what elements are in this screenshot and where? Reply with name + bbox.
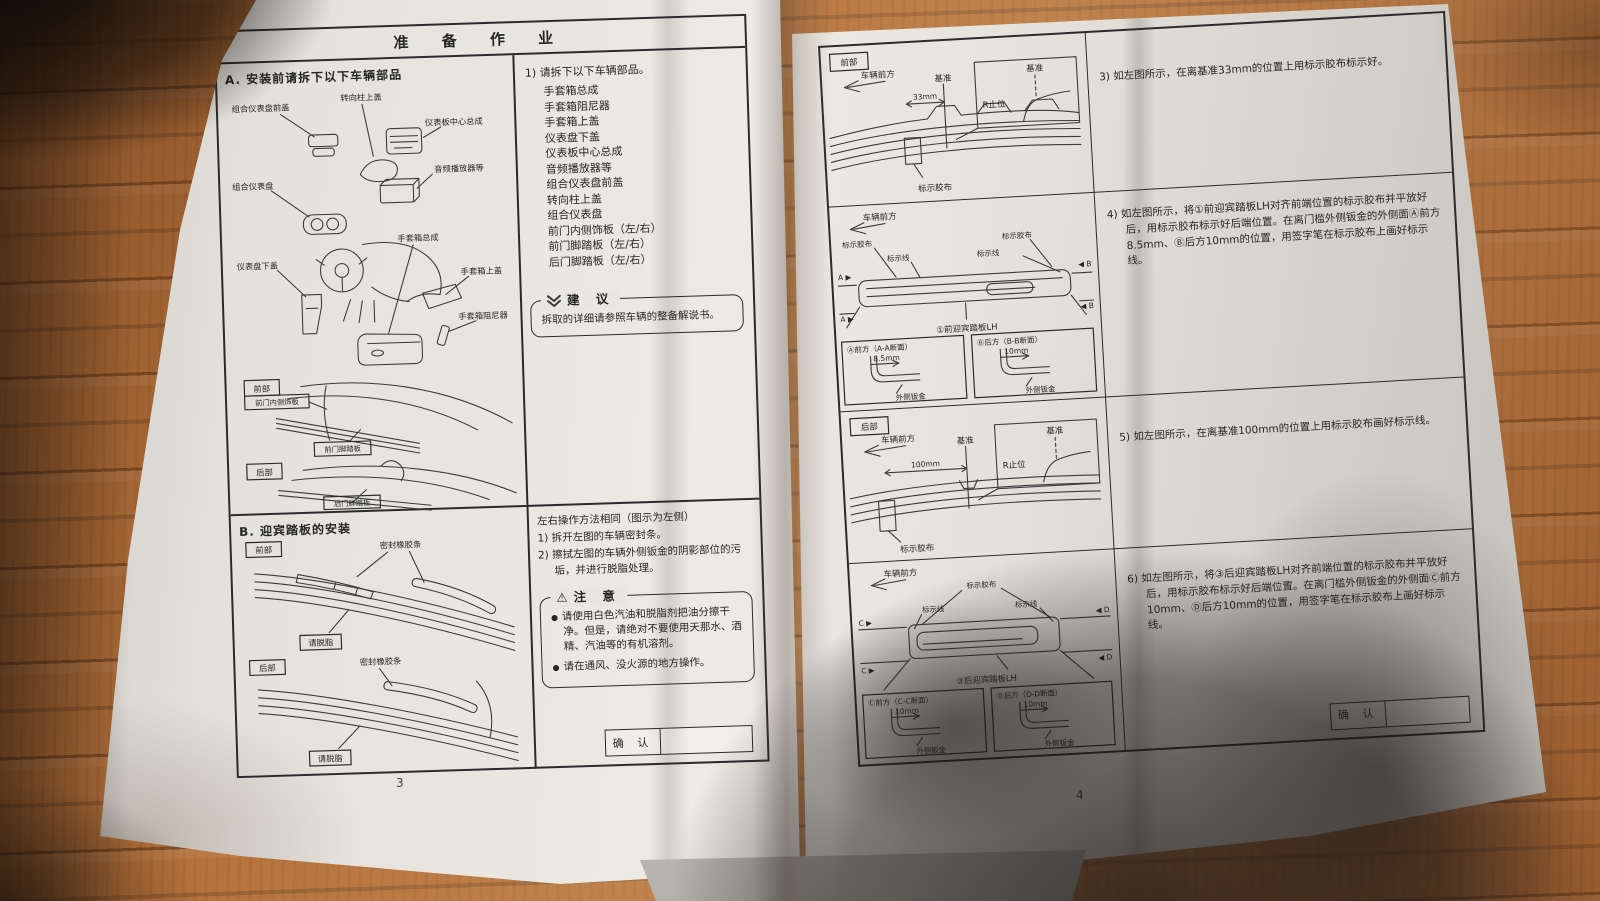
front-datum-label: 基准	[934, 73, 952, 85]
procedure-step-2: 2) 擦拭左图的车辆外侧钣金的阴影部位的污垢，并进行脱脂处理。	[538, 542, 756, 579]
exploded-parts-lines	[269, 101, 478, 368]
right-page-content-box: 前部 车辆前方 基准	[818, 11, 1485, 767]
label-front-door-scuff: 前门脚踏板	[324, 444, 361, 454]
confirm-box-left: 确 认	[605, 725, 754, 757]
confirm-value-cell	[1385, 697, 1469, 727]
step-5: 5) 如左图所示，在离基准100mm的位置上用标示胶布画好标示线。	[1119, 412, 1452, 446]
rear-line-right: 标示线	[1015, 598, 1038, 609]
label-seal-strip-rear: 密封橡胶条	[360, 656, 403, 667]
front-scuff-diagram: 车辆前方 标示胶布 标示线 标示胶布 标示线 A ▶	[829, 193, 1105, 411]
section-a-row: A. 安装前请拆下以下车辆部品	[216, 48, 759, 516]
section-b-text-cell: 左右操作方法相同（图示为左侧） 1) 拆开左图的车辆密封条。 2) 擦拭左图的车…	[529, 500, 768, 769]
confirm-value-cell	[661, 726, 753, 754]
step-5-cell: 5) 如左图所示，在离基准100mm的位置上用标示胶布画好标示线。	[1105, 377, 1472, 548]
section-dd-box: Ⓓ后方（D-D断面） 10mm 外侧钣金	[991, 681, 1115, 751]
section-bb-title: Ⓑ后方（B-B断面）	[977, 334, 1043, 348]
front-datum-direction: 车辆前方	[860, 69, 895, 82]
rear-datum-svg: 后部 车辆前方 基准 100mm	[844, 401, 1110, 559]
section-dd-title: Ⓓ后方（D-D断面）	[996, 687, 1062, 701]
rear-sill-lines	[258, 664, 519, 768]
warning-icon: ⚠	[556, 589, 568, 607]
section-cc-title: Ⓒ前方（C-C断面）	[868, 694, 933, 708]
section-bb-box: Ⓑ后方（B-B断面） 10mm 外侧钣金	[971, 328, 1096, 398]
section-aa-metal: 外侧钣金	[895, 391, 926, 403]
step-3-cell: 3) 如左图所示，在离基准33mm的位置上用标示胶布标示好。	[1085, 13, 1452, 192]
b-bottom-marker: ◀ B	[1080, 301, 1094, 311]
confirm-label: 确 认	[1331, 701, 1387, 729]
rear-scuff-svg: 车辆前方 标示胶布 标示线 标示线 C ▶ C ▶ ◀	[852, 553, 1120, 762]
rear-door-sketch: 后部 后门脚踏板	[247, 456, 517, 516]
label-panel-lower: 仪表盘下盖	[236, 261, 278, 272]
row-rear-scuff: 车辆前方 标示胶布 标示线 标示线 C ▶ C ▶ ◀	[849, 529, 1483, 765]
front-datum-tag: 前部	[840, 57, 858, 69]
front-tag: 前部	[253, 383, 270, 394]
section-dd-metal: 外侧钣金	[1044, 737, 1075, 749]
exploded-parts-diagram: 组合仪表盘前盖 转向柱上盖 仪表板中心总成 音频播放器等 组合仪表盘 仪表盘下盖…	[223, 80, 528, 517]
step-3: 3) 如左图所示，在离基准33mm的位置上用标示胶布标示好。	[1099, 52, 1432, 86]
section-aa-box: Ⓐ前方（A-A断面） 8.5mm 外侧钣金	[842, 335, 967, 405]
c-bottom-marker: C ▶	[861, 666, 875, 676]
rear-scuff-caption: ③后迎宾踏板LH	[956, 673, 1017, 686]
suggestion-text: 拆取的详细请参照车辆的整备解说书。	[541, 307, 734, 328]
front-datum-svg: 前部 车辆前方 基准	[823, 36, 1089, 202]
section-aa-dim: 8.5mm	[873, 353, 900, 363]
label-rear-door-scuff: 后门脚踏板	[334, 498, 371, 508]
suggestion-box: 建 议 拆取的详细请参照车辆的整备解说书。	[530, 294, 744, 338]
rear-tag: 后部	[256, 467, 273, 478]
front-inset-datum: 基准	[1026, 62, 1044, 74]
suggestion-icon	[547, 294, 561, 307]
section-cc-box: Ⓒ前方（C-C断面） 10mm 外侧钣金	[863, 688, 987, 758]
section-bb-metal: 外侧钣金	[1025, 383, 1056, 395]
rear-line-left: 标示线	[922, 603, 945, 614]
confirm-box-right: 确 认	[1329, 696, 1470, 731]
page-number-3: 3	[396, 776, 404, 790]
label-cluster: 组合仪表盘	[232, 181, 274, 192]
section-b-row: B. 迎宾踏板的安装 前部 密封橡胶条 请脱脂	[231, 500, 768, 778]
front-sill-lines	[254, 548, 515, 658]
scuff-install-diagram: 前部 密封橡胶条 请脱脂 后部 密封橡胶条	[237, 532, 532, 777]
d-top-marker: ◀ D	[1096, 605, 1111, 615]
suggestion-box-title: 建 议	[541, 290, 621, 311]
label-degrease-front: 请脱脂	[308, 637, 333, 648]
rear-tape-top: 标示胶布	[966, 579, 996, 591]
confirm-label: 确 认	[606, 729, 662, 756]
front-tape-right: 标示胶布	[1002, 229, 1033, 241]
label-glovebox-cover: 手套箱上盖	[461, 265, 503, 276]
label-glovebox-damper: 手套箱阻尼器	[458, 310, 509, 322]
step-4-cell: 4) 如左图所示，将①前迎宾踏板LH对齐前端位置的标示胶布并平放好后，用标示胶布…	[1094, 173, 1464, 397]
removal-list-intro: 1) 请拆下以下车辆部品。	[525, 58, 746, 81]
label-front-door-trim: 前门内侧饰板	[255, 397, 300, 407]
left-page-content-box: 准 备 作 业 A. 安装前请拆下以下车辆部品	[213, 14, 769, 778]
a-top-marker: A ▶	[838, 272, 852, 282]
front-scuff-direction: 车辆前方	[862, 211, 897, 224]
caution-bullet-2: 请在通风、没火源的地方操作。	[552, 654, 745, 675]
removal-list: 手套箱总成 手套箱阻尼器 手套箱上盖 仪表盘下盖 仪表板中心总成 音频播放器等 …	[543, 78, 752, 270]
rear-datum-label: 基准	[956, 435, 974, 447]
label-seal-strip-front: 密封橡胶条	[380, 539, 423, 550]
rear-scuff-direction: 车辆前方	[883, 567, 917, 579]
front-scuff-svg: 车辆前方 标示胶布 标示线 标示胶布 标示线 A ▶	[832, 196, 1101, 407]
label-steering-column-cover: 转向柱上盖	[340, 92, 382, 103]
front-line-left: 标示线	[887, 252, 911, 263]
front-datum-dim: 33mm	[913, 91, 938, 101]
caution-box: ⚠ 注 意 请使用白色汽油和脱脂剂把油分擦干净。但是，请绝对不要使用天那水、酒精…	[539, 591, 755, 689]
rear-r-stop: R止位	[1002, 459, 1026, 471]
front-door-sketch: 前部 前门内侧饰板 前门脚踏板	[244, 372, 513, 458]
rear-datum-direction: 车辆前方	[881, 433, 916, 446]
label-audio: 音频播放器等	[434, 163, 484, 175]
procedure: 左右操作方法相同（图示为左侧） 1) 拆开左图的车辆密封条。 2) 擦拭左图的车…	[537, 508, 756, 580]
front-tape-left: 标示胶布	[842, 238, 873, 250]
front-datum-diagram: 前部 车辆前方 基准	[820, 33, 1093, 207]
step-6: 6) 如左图所示，将③后迎宾踏板LH对齐前端位置的标示胶布并平放好后，用标示胶布…	[1127, 554, 1463, 635]
caution-bullet-1: 请使用白色汽油和脱脂剂把油分擦干净。但是，请绝对不要使用天那水、酒精、汽油等的有…	[551, 604, 745, 656]
c-top-marker: C ▶	[858, 618, 872, 628]
section-a-diagram-cell: A. 安装前请拆下以下车辆部品	[216, 55, 528, 514]
label-degrease-rear: 请脱脂	[318, 753, 343, 764]
rear-datum-tag: 后部	[861, 421, 879, 433]
section-dd-dim: 10mm	[1023, 699, 1047, 709]
caution-bullets: 请使用白色汽油和脱脂剂把油分擦干净。但是，请绝对不要使用天那水、酒精、汽油等的有…	[551, 604, 746, 675]
section-bb-dim: 10mm	[1004, 346, 1029, 356]
b-rear-tag: 后部	[259, 663, 276, 674]
front-tape-label: 标示胶布	[918, 182, 953, 195]
label-glovebox: 手套箱总成	[397, 232, 439, 243]
rear-tape-label: 标示胶布	[900, 542, 935, 555]
row-front-scuff: 车辆前方 标示胶布 标示线 标示胶布 标示线 A ▶	[829, 173, 1463, 413]
d-bottom-marker: ◀ D	[1098, 652, 1113, 662]
front-line-right: 标示线	[977, 247, 1001, 258]
rear-inset-datum: 基准	[1046, 425, 1064, 437]
section-b-diagram-cell: B. 迎宾踏板的安装 前部 密封橡胶条 请脱脂	[231, 507, 537, 778]
b-top-marker: ◀ B	[1078, 259, 1092, 269]
label-cluster-front-cover: 组合仪表盘前盖	[231, 102, 289, 114]
section-cc-metal: 外侧钣金	[916, 744, 947, 756]
rear-scuff-diagram: 车辆前方 标示胶布 标示线 标示线 C ▶ C ▶ ◀	[849, 549, 1125, 764]
removal-list-cell: 1) 请拆下以下车辆部品。 手套箱总成 手套箱阻尼器 手套箱上盖 仪表盘下盖 仪…	[514, 48, 759, 505]
a-bottom-marker: A ▶	[840, 314, 854, 324]
section-aa-title: Ⓐ前方（A-A断面）	[847, 341, 913, 355]
step-6-cell: 6) 如左图所示，将③后迎宾踏板LH对齐前端位置的标示胶布并平放好后，用标示胶布…	[1114, 529, 1484, 750]
rear-datum-dim: 100mm	[911, 459, 940, 470]
section-cc-dim: 10mm	[895, 706, 919, 716]
page-number-4: 4	[1076, 788, 1084, 802]
rear-datum-diagram: 后部 车辆前方 基准 100mm	[840, 398, 1113, 564]
front-r-stop: R止位	[982, 99, 1006, 111]
step-4: 4) 如左图所示，将①前迎宾踏板LH对齐前端位置的标示胶布并平放好后，用标示胶布…	[1107, 190, 1443, 271]
caution-box-title: ⚠ 注 意	[550, 587, 627, 608]
b-front-tag: 前部	[255, 545, 272, 556]
label-panel-center: 仪表板中心总成	[425, 116, 483, 128]
front-scuff-lines	[835, 210, 1094, 328]
